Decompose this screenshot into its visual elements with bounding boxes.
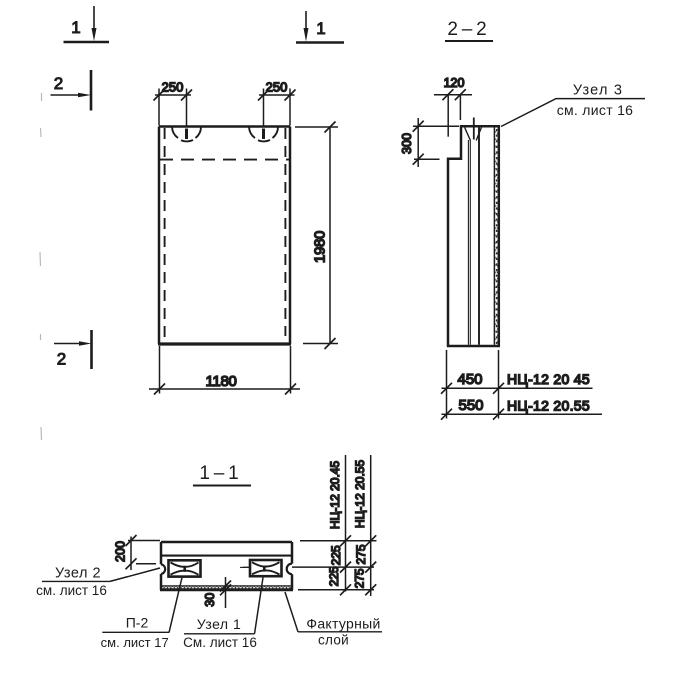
svg-text:см. лист 17: см. лист 17 (101, 635, 169, 650)
svg-text:300: 300 (400, 133, 414, 154)
svg-text:1: 1 (316, 19, 325, 38)
svg-text:1 – 1: 1 – 1 (199, 463, 238, 484)
svg-text:225: 225 (327, 566, 341, 586)
svg-text:550: 550 (458, 397, 483, 414)
svg-text:См. лист 16: См. лист 16 (183, 635, 257, 650)
svg-text:Узел 3: Узел 3 (573, 83, 623, 99)
svg-text:слой: слой (318, 633, 349, 648)
svg-text:НЦ-12 20.55: НЦ-12 20.55 (353, 460, 367, 529)
svg-text:30: 30 (203, 593, 217, 607)
svg-text:250: 250 (266, 80, 288, 95)
svg-text:НЦ-12 20.45: НЦ-12 20.45 (328, 461, 342, 530)
svg-text:НЦ-12 20.55: НЦ-12 20.55 (507, 398, 590, 414)
svg-text:НЦ-12 20 45: НЦ-12 20 45 (507, 371, 590, 387)
svg-text:Фактурный: Фактурный (306, 616, 380, 632)
svg-text:Узел 2: Узел 2 (55, 566, 101, 582)
svg-text:200: 200 (114, 541, 128, 562)
svg-text:1180: 1180 (205, 373, 236, 390)
svg-text:см. лист 16: см. лист 16 (36, 583, 107, 598)
svg-text:П-2: П-2 (126, 615, 149, 631)
svg-text:2: 2 (54, 74, 63, 93)
svg-text:275: 275 (353, 568, 367, 588)
svg-text:2 – 2: 2 – 2 (447, 19, 486, 40)
svg-text:см. лист 16: см. лист 16 (557, 102, 634, 118)
svg-text:2: 2 (57, 350, 66, 369)
svg-text:275: 275 (354, 544, 368, 564)
svg-text:250: 250 (162, 80, 184, 95)
svg-text:1980: 1980 (312, 231, 329, 263)
svg-text:450: 450 (457, 371, 482, 388)
svg-text:1: 1 (71, 18, 80, 37)
svg-text:Узел 1: Узел 1 (197, 616, 242, 632)
svg-text:225: 225 (329, 545, 343, 565)
svg-text:120: 120 (444, 76, 465, 90)
